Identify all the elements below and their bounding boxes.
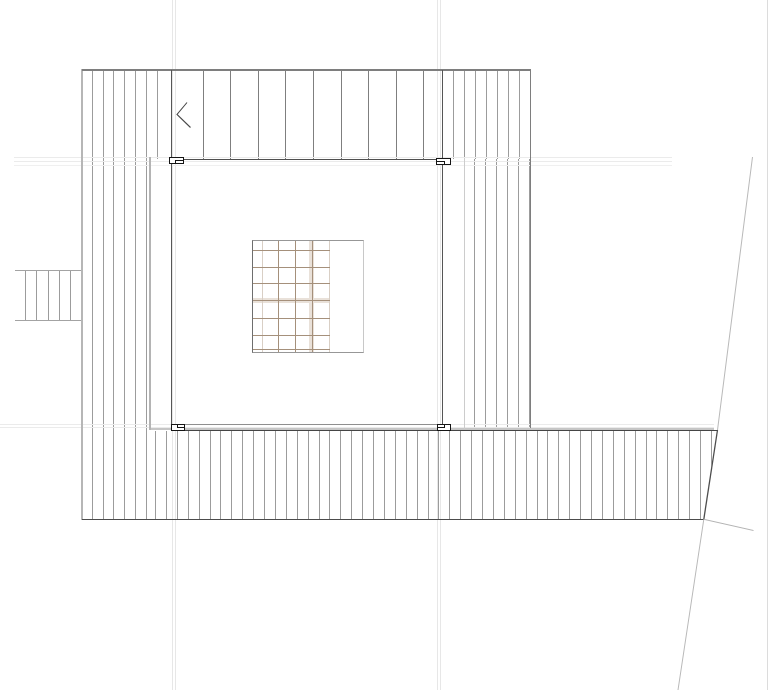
stair-direction-chevron-icon xyxy=(177,103,191,128)
boundary-line-lower xyxy=(678,519,704,690)
cad-plan-viewport[interactable] xyxy=(0,0,769,690)
boundary-line-deck-edge xyxy=(704,430,718,519)
overlay-lines xyxy=(0,0,769,690)
boundary-branch-line xyxy=(704,519,754,530)
boundary-line-upper xyxy=(718,157,753,430)
